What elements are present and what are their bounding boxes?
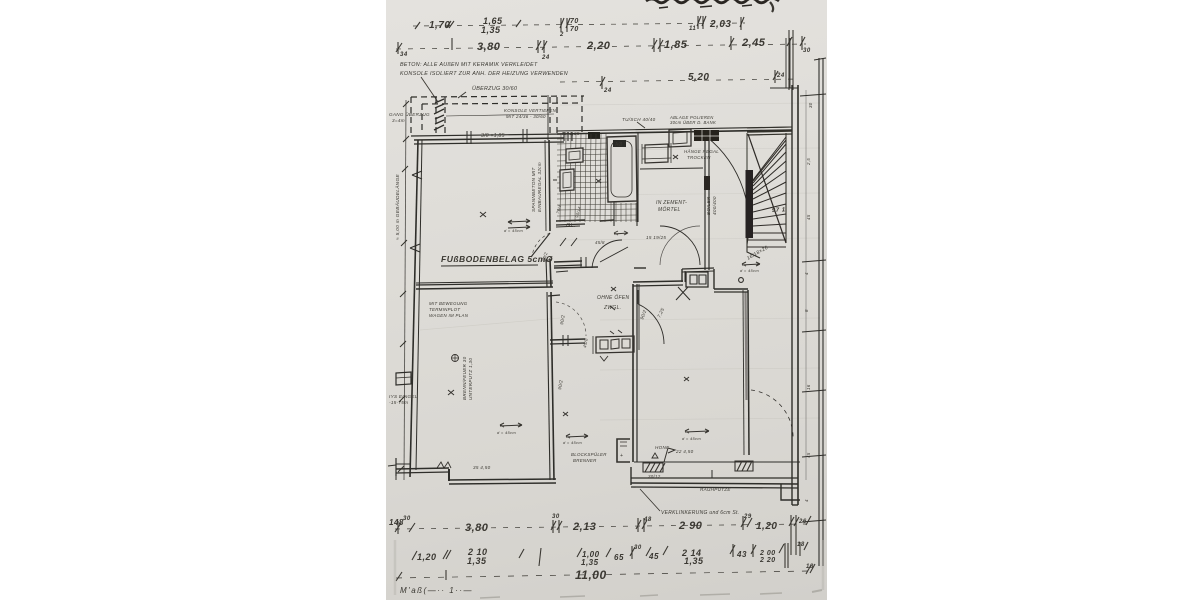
svg-text:16: 16 — [806, 384, 811, 390]
svg-text:M'aß(—·· 1··—: M'aß(—·· 1··— — [400, 586, 473, 595]
svg-text:UNTERPUTZ 1,30: UNTERPUTZ 1,30 — [468, 358, 473, 400]
svg-text:TU/SCH 40/40: TU/SCH 40/40 — [622, 117, 656, 122]
svg-text:400/400: 400/400 — [712, 196, 717, 215]
svg-text:1,70: 1,70 — [429, 20, 450, 31]
svg-text:2,20: 2,20 — [586, 40, 611, 52]
svg-text:VERKLINKERUNG und 6cm St.: VERKLINKERUNG und 6cm St. — [661, 510, 739, 516]
svg-text:HÄNGE REGAL: HÄNGE REGAL — [684, 149, 719, 154]
svg-text:45/8: 45/8 — [582, 337, 589, 348]
svg-text:30: 30 — [552, 514, 560, 520]
svg-text:45/8: 45/8 — [595, 240, 605, 245]
svg-text:15 19/25: 15 19/25 — [646, 235, 666, 240]
svg-text:2,5: 2,5 — [806, 158, 811, 166]
svg-text:7,25: 7,25 — [656, 307, 665, 318]
svg-text:30cm ÜBER D. BANK: 30cm ÜBER D. BANK — [670, 120, 716, 125]
svg-text:26: 26 — [798, 519, 807, 525]
svg-text:TERMINPLOT: TERMINPLOT — [429, 307, 460, 312]
svg-text:GANG ÜBERZUG: GANG ÜBERZUG — [389, 111, 430, 117]
svg-text:BOILER: BOILER — [706, 196, 711, 215]
svg-text:BLOCKSPÜLER: BLOCKSPÜLER — [571, 452, 607, 457]
svg-text:WAGEN IM PLAN: WAGEN IM PLAN — [429, 313, 469, 318]
svg-text:EINBAUREGAL 32cm: EINBAUREGAL 32cm — [537, 162, 542, 212]
svg-text:97 1: 97 1 — [772, 207, 786, 214]
svg-text:KONSOLE VERTIEFEN: KONSOLE VERTIEFEN — [504, 108, 557, 113]
svg-text:24: 24 — [776, 73, 785, 79]
svg-text:35 4,50: 35 4,50 — [473, 465, 491, 470]
svg-text:2,03: 2,03 — [709, 19, 731, 30]
svg-text:d = 45cm: d = 45cm — [497, 430, 516, 435]
svg-text:30: 30 — [403, 516, 411, 522]
svg-text:d = 45cm: d = 45cm — [504, 228, 523, 233]
svg-text:70: 70 — [570, 18, 579, 25]
svg-text:HONF: HONF — [655, 445, 670, 450]
svg-text:2 20: 2 20 — [759, 557, 776, 564]
svg-text:24: 24 — [603, 88, 612, 94]
svg-text:3=4m: 3=4m — [392, 118, 405, 123]
svg-text:29: 29 — [743, 514, 752, 520]
svg-text:SPANNBETON MIT: SPANNBETON MIT — [531, 166, 536, 212]
svg-text:30/12: 30/12 — [648, 474, 661, 479]
svg-text:3,80: 3,80 — [477, 41, 501, 53]
svg-text:34: 34 — [400, 52, 408, 58]
svg-text:43: 43 — [736, 550, 747, 559]
svg-text:≈ 5,00 m GEBÄUDELÄNGE: ≈ 5,00 m GEBÄUDELÄNGE — [394, 174, 401, 240]
svg-text:30: 30 — [808, 102, 813, 108]
svg-text:2,13: 2,13 — [572, 521, 596, 533]
svg-text:ÜBERZUG 30/60: ÜBERZUG 30/60 — [472, 85, 517, 92]
svg-text:1,85: 1,85 — [664, 39, 688, 51]
svg-text:FUßBODENBELAG 5cmØ: FUßBODENBELAG 5cmØ — [441, 254, 553, 264]
svg-text:3/0 ×1,85: 3/0 ×1,85 — [481, 133, 505, 139]
svg-text:1,35: 1,35 — [481, 25, 501, 35]
svg-text:1,35: 1,35 — [467, 556, 487, 566]
svg-text:BRENNER: BRENNER — [573, 458, 597, 463]
svg-text:45: 45 — [806, 214, 811, 220]
svg-text:GL.: GL. — [566, 223, 576, 229]
svg-text:1,35: 1,35 — [581, 558, 599, 567]
svg-text:148: 148 — [389, 518, 404, 527]
svg-text:70: 70 — [570, 26, 579, 33]
svg-text:2 00: 2 00 — [759, 550, 776, 557]
svg-text:8: 8 — [804, 309, 809, 312]
svg-text:5,20: 5,20 — [688, 72, 709, 83]
svg-text:TROCKEN: TROCKEN — [687, 155, 711, 160]
svg-text:-15-75m: -15-75m — [389, 400, 408, 405]
svg-text:1,35: 1,35 — [684, 556, 704, 566]
svg-text:+: + — [620, 453, 623, 459]
svg-text:24: 24 — [541, 55, 550, 61]
svg-text:ZWGL.: ZWGL. — [603, 305, 621, 311]
svg-text:90/2: 90/2 — [559, 314, 566, 325]
svg-text:11: 11 — [689, 26, 696, 32]
svg-text:3,80: 3,80 — [465, 522, 489, 534]
svg-text:90/2: 90/2 — [639, 309, 647, 320]
svg-text:40×1,35: 40×1,35 — [561, 131, 580, 136]
svg-text:AØ: AØ — [615, 142, 622, 148]
svg-text:65: 65 — [614, 553, 624, 562]
svg-text:18: 18 — [797, 542, 805, 548]
svg-text:2: 2 — [559, 32, 564, 38]
svg-text:45: 45 — [648, 552, 659, 561]
svg-text:d = 45cm: d = 45cm — [740, 268, 759, 273]
svg-text:IN ZEMENT-: IN ZEMENT- — [656, 200, 687, 206]
svg-text:d = 45cm: d = 45cm — [682, 436, 701, 441]
svg-text:BRENN/FEUER 30: BRENN/FEUER 30 — [462, 356, 467, 400]
svg-text:30: 30 — [803, 48, 811, 54]
svg-text:2 90: 2 90 — [678, 520, 703, 532]
svg-text:4: 4 — [804, 499, 809, 502]
svg-text:22 4,50: 22 4,50 — [675, 449, 694, 454]
svg-text:KONSOLE ISOLIERT ZUR ANH. DER: KONSOLE ISOLIERT ZUR ANH. DER HEIZUNG VE… — [400, 71, 568, 77]
svg-text:18: 18 — [806, 564, 814, 570]
svg-text:45: 45 — [806, 452, 811, 458]
svg-text:MÖRTEL: MÖRTEL — [658, 206, 681, 213]
svg-text:1,20: 1,20 — [756, 521, 777, 532]
svg-text:11,00: 11,00 — [575, 568, 607, 582]
svg-text:IYS EINGEL: IYS EINGEL — [389, 394, 418, 399]
svg-text:30: 30 — [634, 545, 642, 551]
svg-text:BETON: ALLE AUßEN MIT KERAMIK: BETON: ALLE AUßEN MIT KERAMIK VERKLEIDET — [400, 62, 538, 68]
svg-text:70/4: 70/4 — [555, 204, 562, 214]
svg-text:2,45: 2,45 — [741, 37, 766, 49]
svg-text:1,20: 1,20 — [417, 552, 437, 562]
svg-text:RAUHPUTZE: RAUHPUTZE — [700, 487, 731, 492]
svg-text:d = 45cm: d = 45cm — [563, 440, 582, 445]
svg-text:MIT BEWEGUNG: MIT BEWEGUNG — [429, 301, 468, 306]
svg-text:48: 48 — [643, 517, 652, 523]
svg-text:OHNE ÖFEN: OHNE ÖFEN — [597, 294, 630, 301]
svg-text:4: 4 — [804, 272, 809, 275]
svg-text:90/2: 90/2 — [557, 379, 564, 390]
svg-text:MIT 24/36 - 30/60: MIT 24/36 - 30/60 — [506, 114, 546, 119]
